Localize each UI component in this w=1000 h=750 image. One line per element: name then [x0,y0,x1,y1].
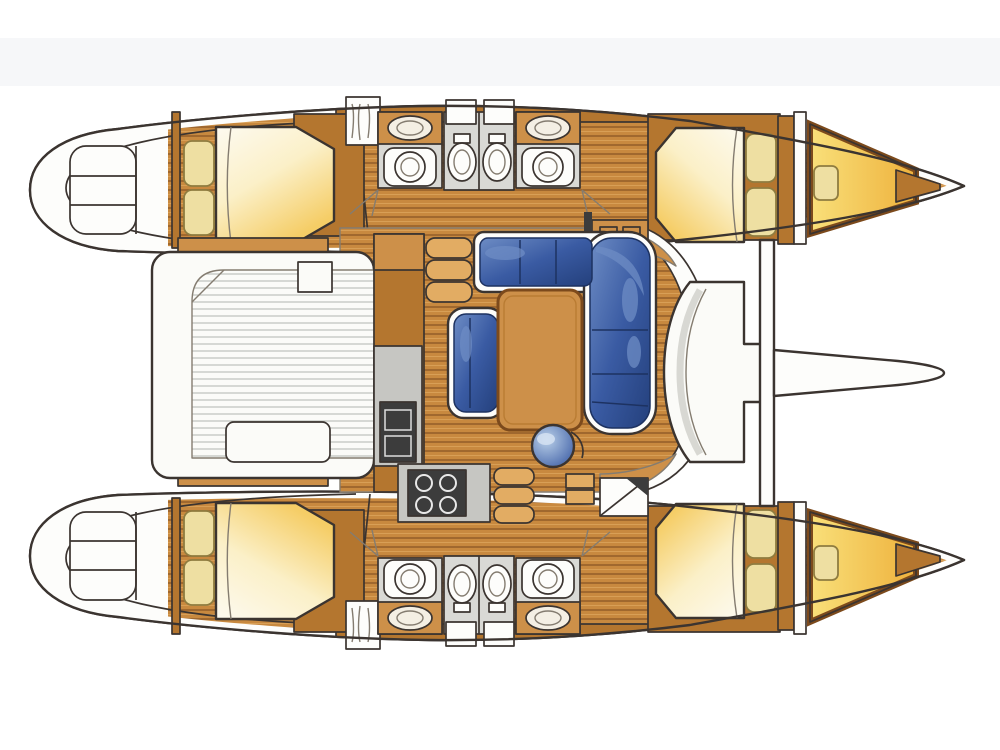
armchair [448,308,504,418]
wardrobe [346,97,380,145]
companionway-step [494,487,534,504]
forward-cabin [648,114,794,244]
toilet-tank [489,134,505,143]
forward-crossbeam [760,240,774,506]
aft-bulkhead [172,112,180,248]
saloon-table [498,290,582,430]
cushion-highlight [485,246,525,260]
swim-platform [70,146,136,234]
double-berth [216,127,334,243]
companionway-step [494,468,534,485]
cushion-highlight [460,326,472,362]
toilet-bowl [395,152,425,182]
double-berth [656,128,744,242]
pillow [746,134,776,182]
sink-basin [526,116,570,140]
pillow [184,190,214,235]
aft-cockpit [152,238,374,486]
galley-cabinet [374,234,424,270]
cockpit-bench [226,422,330,462]
armchair-cushion [454,314,498,412]
cockpit-step [298,262,332,292]
companionway-step [494,506,534,523]
sink-basin [388,116,432,140]
companionway-step [426,238,472,258]
toilet-compartments [444,100,514,190]
stool-highlight [537,433,555,445]
toilet-bowl [483,143,511,181]
stool-seat [532,425,574,467]
instrument-panel [566,490,594,504]
settee-cushions-top [480,238,592,286]
floor-plan-stage [0,0,1000,750]
scan-band [0,38,1000,86]
toilet-bowl [533,152,563,182]
companionway-step [426,260,472,280]
companionway-step [426,282,472,302]
cushion-highlight [622,278,638,322]
cushion-highlight [627,336,641,368]
wardrobe-box [346,97,380,145]
instrument-panel [566,474,594,488]
catamaran-floor-plan [0,0,1000,750]
deck-hatch [484,100,514,124]
toilet-bowl [448,143,476,181]
pillow [184,141,214,186]
settee-cushions-long [590,238,650,428]
toilet-tank [454,134,470,143]
deck-hatch [446,100,476,124]
pillow [814,166,838,200]
forward-bulkhead [778,116,794,244]
